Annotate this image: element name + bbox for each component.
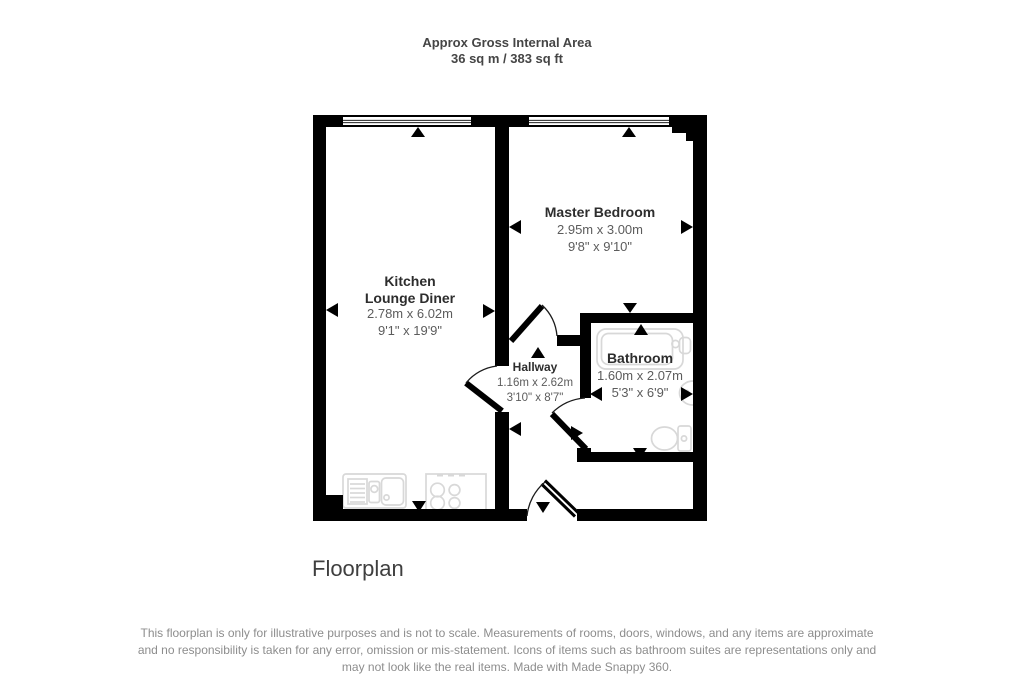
kitchen-room-label: Kitchen Lounge Diner 2.78m x 6.02m 9'1" …	[365, 273, 455, 339]
floorplan-caption: Floorplan	[312, 556, 404, 582]
gross-internal-area-title: Approx Gross Internal Area	[422, 35, 591, 51]
room-name: Bathroom	[597, 350, 683, 367]
room-name: Kitchen	[365, 273, 455, 290]
room-name: Hallway	[497, 360, 573, 376]
toilet-icon	[652, 426, 692, 451]
disclaimer-line: may not look like the real items. Made w…	[138, 659, 876, 676]
room-name: Lounge Diner	[365, 290, 455, 307]
disclaimer-line: and no responsibility is taken for any e…	[138, 642, 876, 659]
hallway-room-label: Hallway 1.16m x 2.62m 3'10" x 8'7"	[497, 360, 573, 407]
room-dimensions-imperial: 9'8" x 9'10"	[545, 238, 655, 255]
hob-icon	[426, 474, 486, 511]
bedroom-room-label: Master Bedroom 2.95m x 3.00m 9'8" x 9'10…	[545, 204, 655, 255]
floorplan-drawing	[0, 0, 1014, 690]
disclaimer-line: This floorplan is only for illustrative …	[138, 625, 876, 642]
sink-icon	[343, 474, 406, 508]
room-dimensions-metric: 2.78m x 6.02m	[365, 306, 455, 323]
gross-internal-area-value: 36 sq m / 383 sq ft	[422, 51, 591, 67]
floorplan-page: Approx Gross Internal Area 36 sq m / 383…	[0, 0, 1014, 690]
room-dimensions-metric: 1.60m x 2.07m	[597, 367, 683, 384]
room-dimensions-imperial: 9'1" x 19'9"	[365, 323, 455, 340]
bathroom-room-label: Bathroom 1.60m x 2.07m 5'3" x 6'9"	[597, 350, 683, 401]
entrance-door-leaf	[542, 481, 579, 517]
disclaimer-text: This floorplan is only for illustrative …	[138, 625, 876, 676]
room-dimensions-imperial: 3'10" x 8'7"	[497, 391, 573, 407]
room-dimensions-metric: 2.95m x 3.00m	[545, 221, 655, 238]
page-title: Approx Gross Internal Area 36 sq m / 383…	[422, 35, 591, 67]
window-icon	[343, 117, 472, 126]
room-dimensions-imperial: 5'3" x 6'9"	[597, 384, 683, 401]
room-dimensions-metric: 1.16m x 2.62m	[497, 376, 573, 392]
window-icon	[529, 117, 670, 126]
room-name: Master Bedroom	[545, 204, 655, 221]
